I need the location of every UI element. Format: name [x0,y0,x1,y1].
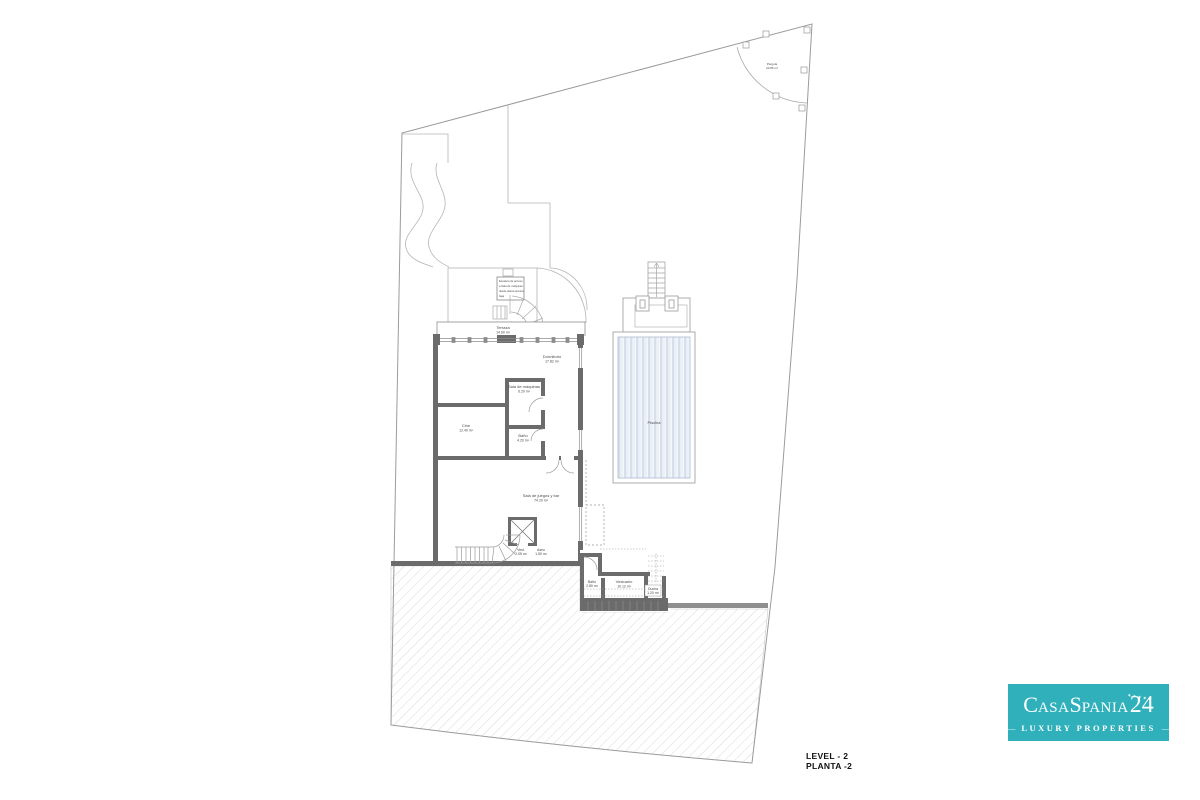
garden-paths [402,105,587,323]
bathroom-area: 4.20 m² [517,439,530,443]
machine-room-label: Sala de máquinas [508,384,540,389]
cinema-area: 12.40 m² [459,429,474,433]
annex-bath-area: 2.80 m² [586,584,599,588]
shower-area: 1.20 m² [647,591,660,595]
machine-room-area: 6.20 m² [518,390,531,394]
bedroom-label: Dormitorio [543,354,562,359]
bedroom-area: 17.82 m² [545,360,560,364]
bathroom-label: Baño [518,433,528,438]
floor-plan-page: Pérgola 20.86 m² Escalera de acceso a Sa… [0,0,1200,800]
dressing-room-label: Vestuario [616,579,633,584]
pool: Piscina [613,262,695,483]
brand-letter-c: C [1023,692,1038,718]
cinema-label: Cine [462,423,471,428]
tagline-dash-right: — [1162,723,1171,733]
brand-tagline: LUXURY PROPERTIES [1021,723,1155,733]
terrain-hatch [391,566,768,763]
brand-tagline-row: — LUXURY PROPERTIES — [1007,723,1170,733]
note-line-2: a Sala de máquinas [499,284,523,288]
brand-logo: CasaSpania✶✶✶✶✶24 — LUXURY PROPERTIES — [1008,684,1169,741]
terrace-label: Terraza [496,325,510,330]
overhang-dashed [586,460,604,545]
wc-area: 1.50 m² [535,552,548,556]
games-room-area: 74.20 m² [534,499,549,503]
pool-label: Piscina [648,420,662,425]
note-line-3: desde planta piscina [499,289,524,293]
games-room-label: Sala de juegos y bar [523,493,560,498]
note-line-4: baja [499,294,505,298]
pergola-area: 20.86 m² [766,66,778,70]
note-box: Escalera de acceso a Sala de máquinas de… [497,277,524,300]
dressing-room-area: 10.12 m² [617,585,632,589]
brand-stars-icon: ✶✶✶✶✶ [1125,683,1155,713]
annex [580,549,768,612]
brand-part-asa: asa [1038,695,1070,721]
terrace-area: 14.60 m² [496,331,511,335]
level-caption-es: PLANTA -2 [806,761,852,771]
hall-area: 2.05 m² [515,552,528,556]
brand-part-pania: pania [1082,695,1129,721]
level-caption-en: LEVEL - 2 [806,751,848,761]
tagline-dash-left: — [1007,723,1016,733]
floor-plan-canvas: Pérgola 20.86 m² Escalera de acceso a Sa… [0,0,1200,800]
main-building [391,334,604,566]
brand-letter-s: S [1069,692,1081,718]
retaining-wall-right [668,603,768,608]
pool-water [618,337,690,478]
note-line-1: Escalera de acceso [499,279,523,283]
brand-wordmark: CasaSpania✶✶✶✶✶24 [1023,692,1153,721]
level-caption: LEVEL - 2 PLANTA -2 [806,751,852,771]
